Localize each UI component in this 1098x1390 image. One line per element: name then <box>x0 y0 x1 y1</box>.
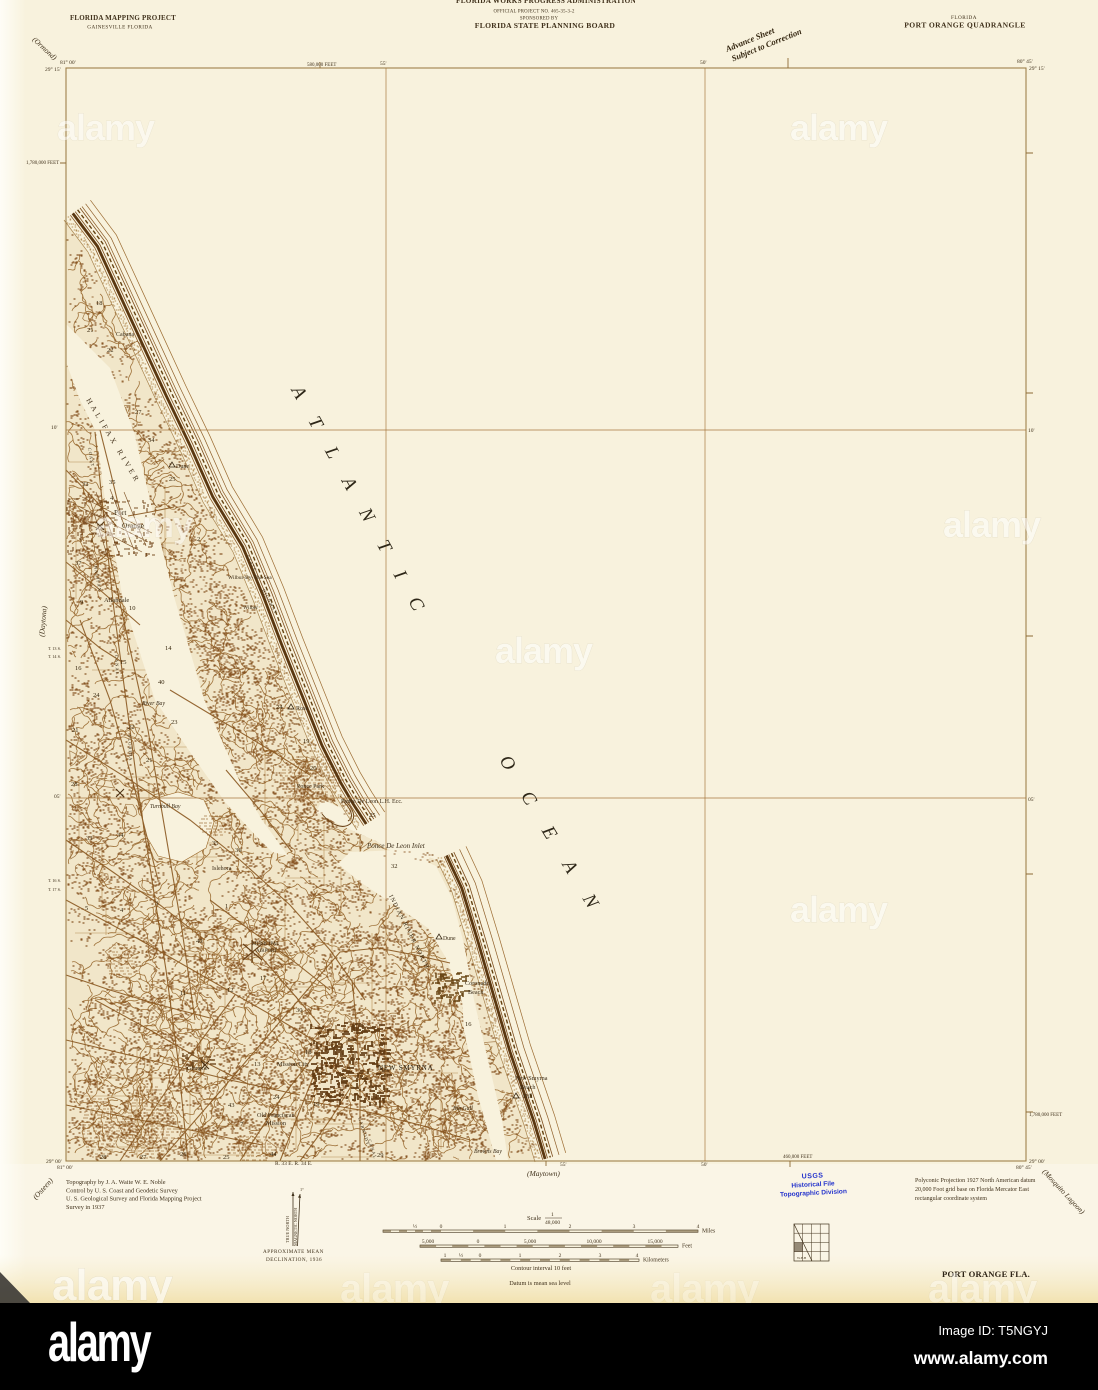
svg-text:43: 43 <box>228 1102 235 1109</box>
svg-text:29° 15': 29° 15' <box>1029 65 1045 72</box>
svg-text:21: 21 <box>72 727 79 734</box>
svg-text:5,000: 5,000 <box>422 1239 435 1245</box>
svg-text:Browns Bay: Browns Bay <box>474 1149 502 1155</box>
svg-text:AIRPORT: AIRPORT <box>256 949 277 954</box>
svg-text:NEW SMYRNA: NEW SMYRNA <box>378 1064 434 1072</box>
svg-text:34: 34 <box>148 437 155 444</box>
svg-text:TRUE NORTH: TRUE NORTH <box>285 1216 290 1243</box>
svg-text:28: 28 <box>71 781 78 788</box>
svg-text:3: 3 <box>155 900 158 907</box>
svg-text:alamy: alamy <box>790 107 888 148</box>
svg-text:15: 15 <box>120 659 127 666</box>
svg-text:Dune: Dune <box>176 464 189 470</box>
svg-text:29° 00': 29° 00' <box>46 1158 62 1165</box>
svg-text:T. 17 S.: T. 17 S. <box>48 887 61 892</box>
svg-text:21: 21 <box>146 757 153 764</box>
svg-text:1,780,000 FEET: 1,780,000 FEET <box>1029 1113 1062 1118</box>
svg-text:1°: 1° <box>300 1187 304 1192</box>
svg-text:37: 37 <box>75 560 82 567</box>
svg-text:1: 1 <box>444 1253 447 1259</box>
svg-text:20: 20 <box>310 765 317 772</box>
svg-text:3: 3 <box>599 1253 602 1259</box>
svg-text:½: ½ <box>413 1223 417 1230</box>
svg-text:15,000: 15,000 <box>647 1239 662 1245</box>
svg-text:12: 12 <box>227 987 234 994</box>
svg-text:22: 22 <box>107 347 114 354</box>
svg-text:10': 10' <box>51 425 58 431</box>
svg-text:580,000 FEET: 580,000 FEET <box>307 63 336 68</box>
svg-text:T. 16 S.: T. 16 S. <box>48 878 61 883</box>
svg-text:33: 33 <box>86 835 93 842</box>
svg-text:Miles: Miles <box>702 1229 716 1235</box>
svg-text:80° 45': 80° 45' <box>1016 1164 1032 1171</box>
svg-text:rectangular coordinate system: rectangular coordinate system <box>915 1196 987 1202</box>
svg-text:T. 14 S.: T. 14 S. <box>48 654 61 659</box>
svg-text:Ponce De Leon L.H. Ecc.: Ponce De Leon L.H. Ecc. <box>341 799 403 805</box>
svg-text:FLORIDA MAPPING PROJECT: FLORIDA MAPPING PROJECT <box>70 14 176 22</box>
svg-text:18: 18 <box>305 1049 312 1056</box>
svg-text:32: 32 <box>391 863 398 870</box>
svg-text:Mission City: Mission City <box>277 1061 310 1068</box>
svg-text:OFFICIAL PROJECT NO. 465-35-3-: OFFICIAL PROJECT NO. 465-35-3-2 <box>493 10 574 15</box>
svg-text:33: 33 <box>82 481 89 488</box>
svg-text:New Smyrna: New Smyrna <box>515 1075 548 1082</box>
svg-text:alamy: alamy <box>95 504 193 545</box>
svg-text:24: 24 <box>276 704 283 711</box>
svg-text:DECLINATION, 1936: DECLINATION, 1936 <box>266 1257 322 1263</box>
svg-text:W.E.B: W.E.B <box>797 1256 807 1260</box>
svg-text:36: 36 <box>235 847 242 854</box>
svg-text:27: 27 <box>135 409 142 416</box>
svg-text:4: 4 <box>697 1224 700 1230</box>
svg-text:Mission: Mission <box>266 1120 286 1127</box>
svg-text:13: 13 <box>254 1061 261 1068</box>
svg-text:T. 13 S.: T. 13 S. <box>48 646 61 651</box>
svg-text:81° 00': 81° 00' <box>60 59 76 66</box>
svg-text:Allandale: Allandale <box>104 597 129 604</box>
svg-text:21: 21 <box>87 327 94 334</box>
svg-text:19: 19 <box>313 1101 320 1108</box>
svg-text:10': 10' <box>1028 428 1035 434</box>
svg-text:34: 34 <box>117 832 124 839</box>
svg-text:0: 0 <box>479 1253 482 1259</box>
svg-text:Wilber: Wilber <box>243 605 258 611</box>
svg-text:alamy: alamy <box>340 1267 450 1303</box>
svg-text:PORT ORANGE QUADRANGLE: PORT ORANGE QUADRANGLE <box>904 21 1025 30</box>
svg-text:55': 55' <box>380 61 387 67</box>
svg-text:16: 16 <box>465 1021 472 1028</box>
svg-text:10,000: 10,000 <box>586 1239 601 1245</box>
svg-text:0: 0 <box>440 1224 443 1230</box>
svg-text:2: 2 <box>197 536 200 543</box>
svg-text:29° 15': 29° 15' <box>45 66 61 73</box>
svg-text:35: 35 <box>109 479 116 486</box>
svg-text:24: 24 <box>273 1094 280 1101</box>
svg-text:Glencoe: Glencoe <box>187 1065 208 1072</box>
svg-text:1: 1 <box>551 1212 554 1218</box>
svg-text:MUNICIPAL: MUNICIPAL <box>252 942 279 947</box>
svg-text:Cabana: Cabana <box>116 332 134 338</box>
svg-text:Turnbull Bay: Turnbull Bay <box>150 804 181 810</box>
svg-text:26: 26 <box>180 1151 187 1158</box>
svg-text:Beach: Beach <box>520 1084 536 1091</box>
svg-text:Dune: Dune <box>443 936 456 942</box>
svg-text:Wilbur-By-The-Sea: Wilbur-By-The-Sea <box>228 575 272 581</box>
svg-text:Scale: Scale <box>527 1215 541 1222</box>
svg-text:50': 50' <box>701 1162 708 1168</box>
svg-text:Big Gull: Big Gull <box>453 1106 473 1112</box>
svg-text:1: 1 <box>519 1253 522 1259</box>
svg-text:MAGNETIC NORTH: MAGNETIC NORTH <box>293 1208 298 1246</box>
svg-text:3: 3 <box>633 1224 636 1230</box>
svg-text:0: 0 <box>477 1239 480 1245</box>
svg-text:alamy: alamy <box>928 1267 1038 1303</box>
svg-text:Kilometers: Kilometers <box>643 1258 670 1264</box>
svg-text:25: 25 <box>223 1154 230 1161</box>
svg-text:80° 45': 80° 45' <box>1017 58 1033 65</box>
svg-text:2: 2 <box>569 1224 572 1230</box>
svg-text:17: 17 <box>260 975 267 982</box>
svg-text:alamy: alamy <box>52 1261 173 1303</box>
svg-text:40: 40 <box>158 679 165 686</box>
svg-text:alamy: alamy <box>790 889 888 930</box>
svg-text:Ponce De Leon Inlet: Ponce De Leon Inlet <box>366 842 426 850</box>
svg-text:alamy: alamy <box>495 630 593 671</box>
svg-text:27: 27 <box>140 1154 147 1161</box>
svg-text:Ponce Park: Ponce Park <box>297 784 324 790</box>
svg-text:35: 35 <box>212 840 219 847</box>
svg-text:U. S. Geological Survey and Fl: U. S. Geological Survey and Florida Mapp… <box>66 1196 202 1203</box>
svg-text:23: 23 <box>171 719 178 726</box>
svg-text:Old Franciscan: Old Franciscan <box>257 1112 295 1119</box>
svg-text:50': 50' <box>700 60 707 66</box>
svg-text:48,000: 48,000 <box>545 1220 560 1226</box>
svg-text:Islehora: Islehora <box>212 866 232 872</box>
svg-text:22: 22 <box>128 724 135 731</box>
svg-text:19: 19 <box>303 738 310 745</box>
svg-text:40: 40 <box>196 938 203 945</box>
svg-text:Datum is mean sea level: Datum is mean sea level <box>509 1280 571 1287</box>
svg-text:11: 11 <box>180 990 186 997</box>
svg-text:USGS: USGS <box>802 1172 824 1180</box>
svg-text:24: 24 <box>93 692 100 699</box>
svg-text:30: 30 <box>296 1007 303 1014</box>
svg-text:25: 25 <box>169 476 176 483</box>
svg-text:2: 2 <box>559 1253 562 1259</box>
svg-text:Feet: Feet <box>682 1244 692 1250</box>
svg-text:alamy: alamy <box>57 107 155 148</box>
svg-text:Survey in 1937: Survey in 1937 <box>66 1204 104 1211</box>
svg-text:Coronado: Coronado <box>465 980 489 987</box>
svg-text:44: 44 <box>270 1151 277 1158</box>
svg-text:Contour interval 10 feet: Contour interval 10 feet <box>511 1265 572 1272</box>
svg-text:9: 9 <box>80 599 83 606</box>
svg-text:APPROXIMATE MEAN: APPROXIMATE MEAN <box>263 1249 324 1255</box>
svg-text:5: 5 <box>85 905 88 912</box>
svg-text:FLORIDA WORKS PROGRESS ADMINIS: FLORIDA WORKS PROGRESS ADMINISTRATION <box>456 0 636 5</box>
svg-text:FLORIDA STATE PLANNING BOARD: FLORIDA STATE PLANNING BOARD <box>475 21 616 30</box>
svg-text:alamy: alamy <box>943 504 1041 545</box>
svg-text:5,000: 5,000 <box>524 1239 537 1245</box>
svg-text:GAINESVILLE FLORIDA: GAINESVILLE FLORIDA <box>87 25 152 31</box>
svg-text:alamy: alamy <box>650 1267 760 1303</box>
svg-text:1: 1 <box>504 1224 507 1230</box>
svg-text:Rose: Rose <box>296 706 308 712</box>
svg-text:(Maytown): (Maytown) <box>527 1169 560 1178</box>
svg-text:½: ½ <box>459 1252 463 1259</box>
svg-text:Polyconic Projection 1927 Nort: Polyconic Projection 1927 North American… <box>915 1178 1036 1184</box>
svg-text:16: 16 <box>75 665 82 672</box>
svg-text:28: 28 <box>100 1154 107 1161</box>
svg-text:10: 10 <box>129 605 136 612</box>
svg-text:River Bay: River Bay <box>141 701 165 707</box>
svg-text:R. 33 E. R. 34 E.: R. 33 E. R. 34 E. <box>275 1161 313 1167</box>
svg-text:14: 14 <box>165 645 172 652</box>
svg-text:29° 00': 29° 00' <box>1029 1158 1045 1165</box>
svg-text:81° 00': 81° 00' <box>57 1164 73 1171</box>
svg-text:Topography by J. A. Waite W: Topography by J. A. Waite W. E. Noble <box>66 1179 166 1186</box>
svg-text:55': 55' <box>560 1162 567 1168</box>
svg-text:Control by U. S. Coast and Ge: Control by U. S. Coast and Geodetic Surv… <box>66 1187 179 1194</box>
svg-text:18: 18 <box>96 300 103 307</box>
svg-text:1: 1 <box>225 903 228 910</box>
svg-text:25: 25 <box>369 812 376 819</box>
svg-text:Hill: Hill <box>523 1093 533 1100</box>
svg-text:05': 05' <box>54 794 61 800</box>
svg-text:460,000 FEET: 460,000 FEET <box>783 1155 812 1160</box>
svg-text:Beach: Beach <box>468 989 484 996</box>
svg-text:1,780,000 FEET: 1,780,000 FEET <box>26 161 59 166</box>
svg-text:29: 29 <box>377 1152 384 1159</box>
svg-text:20,000 Foot grid base on Flori: 20,000 Foot grid base on Florida Mercato… <box>915 1187 1029 1193</box>
svg-text:4: 4 <box>636 1253 639 1259</box>
svg-text:05': 05' <box>1028 797 1035 803</box>
